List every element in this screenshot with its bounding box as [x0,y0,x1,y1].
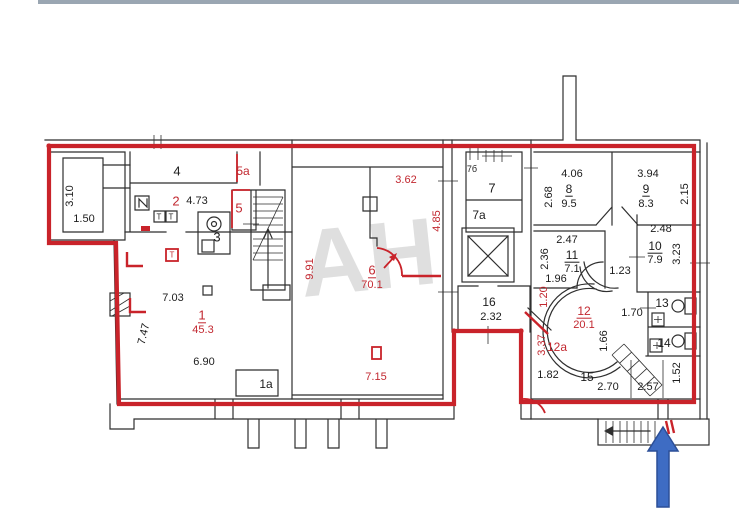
plan-label: 2.70 [597,381,618,393]
plan-label: 3.10 [64,185,76,206]
toilet-icon [202,240,214,252]
plan-label: 20.1 [573,319,594,331]
plan-label: 2.15 [679,183,691,204]
plan-label: 15 [580,370,594,384]
plan-label: 5a [236,164,250,178]
toilet-icon [672,335,684,347]
plan-label: 13 [655,296,669,310]
plan-label: 2.32 [480,311,501,323]
hatched-pier [110,293,130,316]
screenshot-root: АН [0,0,739,511]
elevator-shaft-icon [462,228,514,282]
plan-label: 2.48 [650,223,671,235]
plan-label: 1.52 [671,362,683,383]
plan-label: 3.62 [395,174,416,186]
plan-label: 16 [482,295,496,309]
plan-label: 8 [566,182,573,196]
plan-label: 12 [577,304,591,318]
plan-label: Т [170,251,175,260]
plan-label: 6 [368,263,375,278]
plan-label: 2.47 [556,234,577,246]
plan-label: 12a [547,340,567,354]
plan-label: 7.03 [162,292,183,304]
watermark-text: АН [294,198,442,318]
plan-label: 2 [172,194,179,209]
plan-label: 2.68 [543,186,555,207]
plan-label: 1a [259,377,273,391]
entrance-arrow-icon [648,427,678,507]
plan-label: 7.9 [647,254,662,266]
plan-label: 1.66 [598,330,610,351]
plan-label: 9.5 [561,198,576,210]
plan-label: 5 [235,201,242,216]
plan-label: Т [157,213,162,222]
floor-plan-image: АН [0,0,739,511]
plan-label: 3 [213,230,220,245]
plan-label: 45.3 [192,324,213,336]
plan-label: 1.20 [538,286,550,307]
plan-label: 11 [566,248,579,262]
plan-label: 9.91 [304,258,316,279]
plan-label: 7б [467,164,477,174]
toilet-icon [672,300,684,312]
plan-label: 3.23 [671,243,683,264]
plan-label: 1.70 [621,307,642,319]
plan-label: 4.06 [561,168,582,180]
stairs-direction-arrow-icon [604,426,613,436]
plan-label: 1.82 [537,369,558,381]
plan-label: 7 [488,181,495,196]
plan-label: 70.1 [361,279,382,291]
plan-label: Т [169,213,174,222]
plan-label: 14 [657,336,671,350]
plan-label: 9 [643,182,650,196]
plan-label: 8.3 [638,198,653,210]
plan-label: 1.23 [609,265,630,277]
plan-label: 1.96 [545,273,566,285]
plan-label: 7.15 [365,371,386,383]
plan-label: 7a [472,208,486,222]
plan-label: 1.50 [73,213,94,225]
entrance-door-mark [666,420,674,434]
page-top-edge [38,0,739,4]
plan-label: 3.94 [637,168,658,180]
plan-label: 6.90 [193,356,214,368]
plan-label: 2.57 [637,381,658,393]
plan-label: 7.47 [136,322,153,346]
plan-label: 4 [173,164,180,179]
plan-label: 4.73 [186,195,207,207]
plan-label: 4.85 [431,210,443,231]
plan-label: 1 [198,308,205,323]
plan-label: 10 [648,239,662,253]
staircase-icon [253,197,283,288]
plan-label: 2.36 [539,248,551,269]
